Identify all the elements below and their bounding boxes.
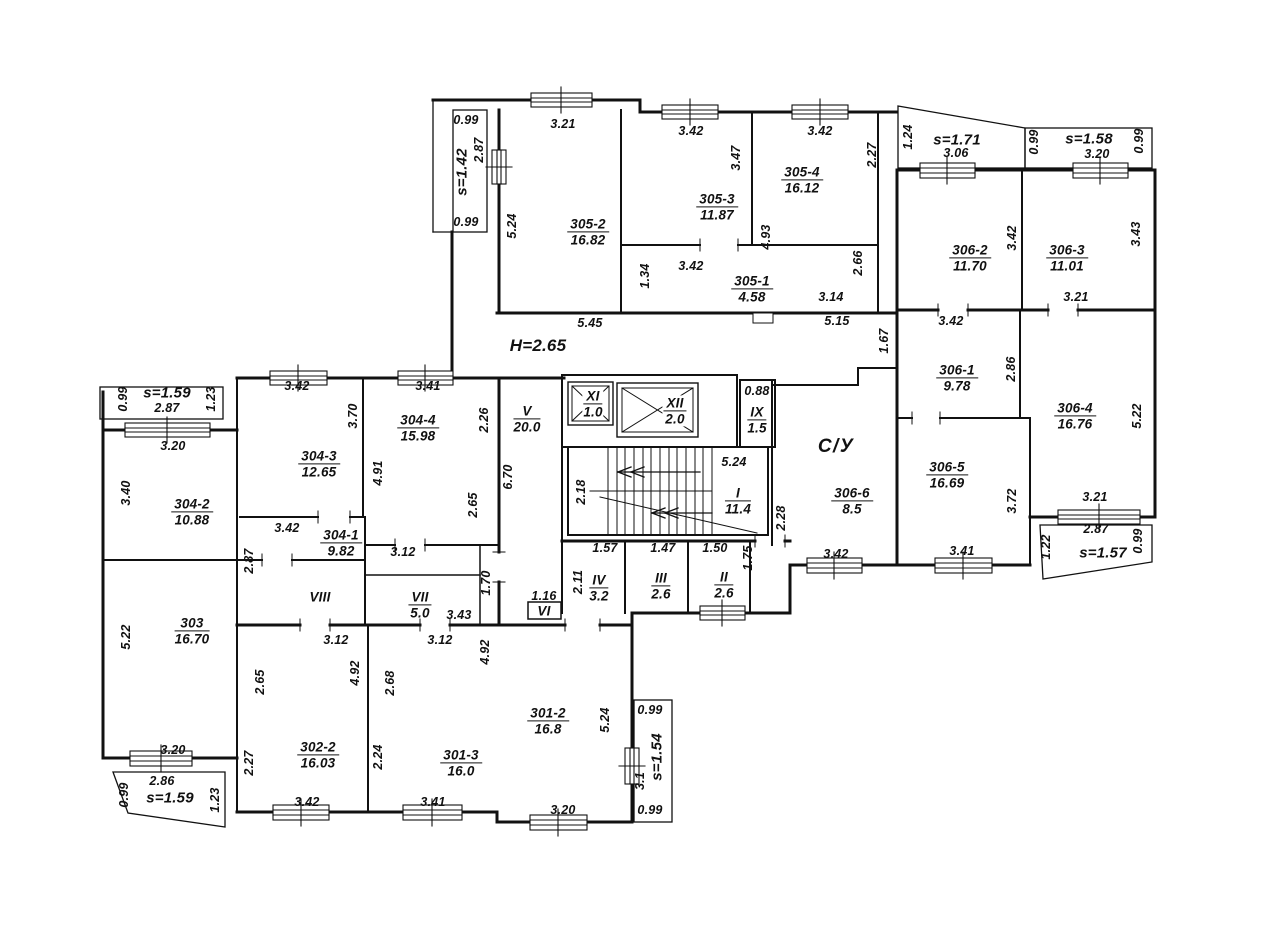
floor-plan-drawing	[0, 0, 1280, 941]
window	[530, 809, 587, 836]
inner-walls	[103, 110, 1030, 812]
window	[662, 99, 718, 125]
elevator-xi-icon	[568, 382, 613, 425]
elevator-xii-icon	[617, 383, 698, 437]
stair-direction-arrows	[618, 467, 712, 518]
window	[1073, 157, 1128, 184]
balcony-s171	[898, 106, 1025, 168]
balcony-s142	[453, 110, 487, 232]
window	[531, 87, 592, 113]
balcony-s154	[634, 700, 672, 822]
window	[486, 150, 512, 184]
window	[920, 157, 975, 184]
floor-plan-canvas: Н=2.65 С/У 305-216.82305-311.87305-416.1…	[0, 0, 1280, 941]
stairs-icon	[568, 447, 768, 535]
window	[807, 552, 862, 579]
window	[130, 745, 192, 772]
window	[398, 365, 453, 391]
window	[403, 799, 462, 826]
balconies	[100, 100, 1152, 827]
balcony-s157	[1040, 525, 1152, 579]
window	[792, 99, 848, 125]
window	[1058, 504, 1140, 530]
outer-walls	[103, 100, 1155, 822]
balcony-s158	[1025, 128, 1152, 168]
balcony-s159-top	[100, 387, 223, 419]
window	[270, 365, 327, 391]
shaft-ix	[740, 380, 775, 447]
window	[700, 600, 745, 626]
window	[125, 417, 210, 443]
window	[619, 748, 645, 784]
window	[273, 799, 329, 826]
window	[935, 552, 992, 579]
balcony-s159-bottom	[113, 772, 225, 827]
